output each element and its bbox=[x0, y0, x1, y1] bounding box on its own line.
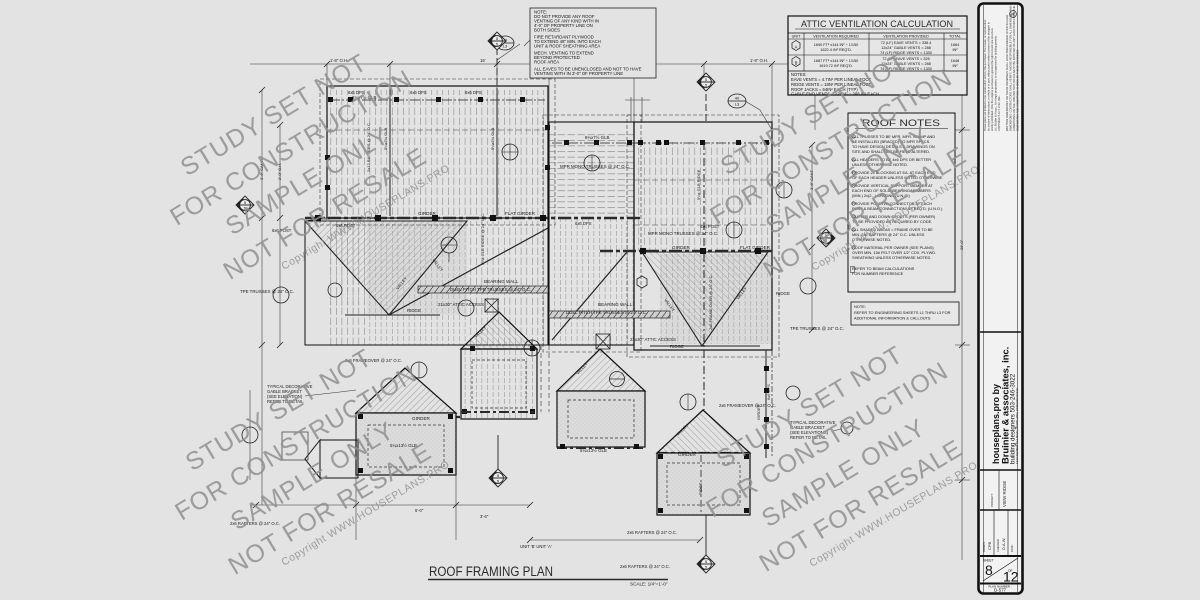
svg-text:UNIT & ROOF SHEATHING AREA: UNIT & ROOF SHEATHING AREA bbox=[534, 44, 600, 49]
svg-text:ROOF AREA: ROOF AREA bbox=[534, 60, 559, 65]
svg-text:2x6 FRAME OVER @ 24" O.C.: 2x6 FRAME OVER @ 24" O.C. bbox=[708, 275, 713, 331]
svg-text:2x6 RAFTERS @ 24" O.C.: 2x6 RAFTERS @ 24" O.C. bbox=[627, 530, 677, 535]
svg-text:BOTH SIDES: BOTH SIDES bbox=[534, 28, 560, 33]
svg-text:RIDGE: RIDGE bbox=[698, 482, 703, 495]
svg-text:12x24" GABLE VENTS = 288: 12x24" GABLE VENTS = 288 bbox=[881, 46, 931, 50]
svg-text:5¼x GLB RIDGE @ 24" O.C.: 5¼x GLB RIDGE @ 24" O.C. bbox=[480, 213, 485, 265]
svg-text:WRITTEN DIMENSIONS ON THESE DR: WRITTEN DIMENSIONS ON THESE DRAWINGS SHA… bbox=[1005, 15, 1009, 131]
svg-text:UNIT 'B' UNIT 'A': UNIT 'B' UNIT 'A' bbox=[520, 544, 552, 549]
svg-text:REFER TO ENGINEERING SHEETS L1: REFER TO ENGINEERING SHEETS L1 THRU L3 F… bbox=[854, 310, 951, 315]
svg-text:1234 SW BERTHA BLVD, PORTLAND,: 1234 SW BERTHA BLVD, PORTLAND, OREGON 97… bbox=[1015, 388, 1019, 464]
svg-text:CHECKED:: CHECKED: bbox=[996, 538, 1000, 552]
svg-text:40: 40 bbox=[735, 96, 740, 101]
svg-text:2x6 FRAMEOVER @ 24" O.C.: 2x6 FRAMEOVER @ 24" O.C. bbox=[719, 403, 776, 408]
svg-text:26'-0": 26'-0" bbox=[959, 239, 964, 250]
svg-text:CONDITIONS ON THE JOB AND THIS: CONDITIONS ON THE JOB AND THIS OFFICE MU… bbox=[1012, 6, 1016, 131]
svg-text:6x6 DPS: 6x6 DPS bbox=[465, 90, 482, 95]
svg-text:TPE TRUSSES @ 24" O.C.: TPE TRUSSES @ 24" O.C. bbox=[240, 289, 294, 294]
svg-text:ADDITIONAL INFORMATION & CALLO: ADDITIONAL INFORMATION & CALLOUTS bbox=[854, 316, 931, 321]
svg-text:21x30" ATTIC ACCESS: 21x30" ATTIC ACCESS bbox=[438, 302, 484, 307]
svg-text:IN²: IN² bbox=[952, 64, 958, 68]
svg-text:6x6 DPS: 6x6 DPS bbox=[766, 384, 771, 400]
svg-text:BEARING WALL: BEARING WALL bbox=[484, 279, 519, 284]
svg-text:1690 FT² x144 IN² ÷ 1/150: 1690 FT² x144 IN² ÷ 1/150 bbox=[814, 43, 859, 47]
svg-text:FLAT GIRDER: FLAT GIRDER bbox=[740, 245, 771, 250]
svg-text:1664: 1664 bbox=[951, 43, 959, 47]
svg-text:72 (LF) EAVE VENTS = 338.4: 72 (LF) EAVE VENTS = 338.4 bbox=[881, 41, 932, 45]
svg-text:1'-8" O.H.: 1'-8" O.H. bbox=[750, 58, 768, 63]
svg-text:1687 FT² x144 IN² ÷ 1/150: 1687 FT² x144 IN² ÷ 1/150 bbox=[814, 59, 859, 63]
svg-text:SCALE: 1/4"=1'-0": SCALE: 1/4"=1'-0" bbox=[630, 582, 668, 587]
svg-text:FLAT GIRDER: FLAT GIRDER bbox=[505, 211, 536, 216]
svg-text:MPR MONO TRUSSES @ 24" O.C.: MPR MONO TRUSSES @ 24" O.C. bbox=[648, 231, 718, 236]
svg-text:GIRDER: GIRDER bbox=[672, 245, 691, 250]
svg-text:These plans are limited to one: These plans are limited to one construct… bbox=[983, 19, 987, 131]
svg-text:BEARING WALL: BEARING WALL bbox=[598, 302, 633, 307]
svg-text:TOTAL: TOTAL bbox=[949, 35, 961, 39]
svg-text:DIMENSIONS. CONTRACTORS SHALL: DIMENSIONS. CONTRACTORS SHALL VERIFY, AN… bbox=[1009, 6, 1013, 131]
svg-text:PROJECT:: PROJECT: bbox=[990, 493, 994, 507]
svg-text:VIEW RIDGE: VIEW RIDGE bbox=[1002, 481, 1007, 507]
svg-text:2x6 RAFTERS @ 24" O.C.: 2x6 RAFTERS @ 24" O.C. bbox=[620, 564, 670, 569]
svg-text:MPR MONO TRUSSES @ 24" O.C.: MPR MONO TRUSSES @ 24" O.C. bbox=[560, 164, 630, 169]
svg-text:GIRDER: GIRDER bbox=[678, 452, 697, 457]
svg-text:VENTILATION PROVIDED: VENTILATION PROVIDED bbox=[883, 35, 929, 39]
svg-text:GIRDER: GIRDER bbox=[418, 211, 437, 216]
svg-text:16': 16' bbox=[480, 58, 486, 63]
svg-text:TPE TRUSSES @ 24" O.C.: TPE TRUSSES @ 24" O.C. bbox=[790, 326, 844, 331]
svg-text:by anyone of these plans, in w: by anyone of these plans, in whole or in… bbox=[987, 22, 991, 131]
svg-text:DRAWN:: DRAWN: bbox=[982, 541, 986, 552]
svg-text:DUEL PITCH TPE TRUSSES @ 24" O: DUEL PITCH TPE TRUSSES @ 24" O.C. bbox=[566, 310, 647, 315]
svg-text:UNIT: UNIT bbox=[792, 35, 802, 39]
svg-text:5'-0": 5'-0" bbox=[415, 508, 424, 513]
svg-text:RIDGE: RIDGE bbox=[407, 308, 421, 313]
svg-text:1619.72 IN² REQ'D.: 1619.72 IN² REQ'D. bbox=[819, 64, 853, 68]
svg-text:8¼x7½ GLB: 8¼x7½ GLB bbox=[585, 135, 609, 140]
svg-text:IN²: IN² bbox=[952, 48, 958, 52]
svg-text:RIDGE: RIDGE bbox=[670, 344, 684, 349]
svg-text:5¼x7¼ GLB: 5¼x7¼ GLB bbox=[490, 127, 495, 150]
svg-text:D-577: D-577 bbox=[994, 588, 1007, 593]
svg-text:Lic. Builder & Assoc., is in l: Lic. Builder & Assoc., is in legal prepa… bbox=[994, 35, 998, 131]
svg-text:B: B bbox=[795, 61, 798, 66]
svg-text:3'-6": 3'-6" bbox=[480, 514, 489, 519]
svg-text:NOTE:: NOTE: bbox=[854, 304, 866, 309]
svg-text:6x6 DPS: 6x6 DPS bbox=[575, 221, 592, 226]
svg-text:GIRDER: GIRDER bbox=[756, 404, 761, 420]
svg-text:GIRDER: GIRDER bbox=[412, 416, 431, 421]
svg-text:21x30" ATTIC ACCESS: 21x30" ATTIC ACCESS bbox=[630, 337, 676, 342]
svg-text:5¼x13½ GLB: 5¼x13½ GLB bbox=[580, 448, 607, 453]
svg-text:1622.4 IN² REQ'D.: 1622.4 IN² REQ'D. bbox=[820, 48, 852, 52]
svg-text:VENTING WITH IN 3'-0" OF PROPE: VENTING WITH IN 3'-0" OF PROPERTY LINE bbox=[534, 71, 623, 76]
svg-text:L3: L3 bbox=[503, 44, 508, 49]
svg-text:RIDGE: RIDGE bbox=[776, 291, 790, 296]
svg-text:ATTIC VENTILATION CALCULATION: ATTIC VENTILATION CALCULATION bbox=[801, 19, 953, 29]
svg-text:L3: L3 bbox=[735, 102, 740, 107]
svg-text:D.A.W.: D.A.W. bbox=[1001, 538, 1006, 550]
svg-text:COPYRIGHT ACT 1732, INC.: COPYRIGHT ACT 1732, INC. bbox=[997, 95, 1001, 131]
svg-text:5¼x GLB RIDGE: 5¼x GLB RIDGE bbox=[696, 169, 701, 200]
svg-text:DIMENSIONS AND CONDITIONS SHOW: DIMENSIONS AND CONDITIONS SHOWN BY THESE… bbox=[1016, 49, 1020, 131]
svg-text:A: A bbox=[795, 45, 798, 50]
svg-text:FOR NUMBER REFERENCE: FOR NUMBER REFERENCE bbox=[852, 271, 904, 276]
svg-text:strictly prohibited. Only the: strictly prohibited. Only the original p… bbox=[990, 27, 994, 131]
svg-text:VENTILATION REQUIRED: VENTILATION REQUIRED bbox=[813, 35, 859, 39]
svg-text:ROOF FRAMING PLAN: ROOF FRAMING PLAN bbox=[429, 564, 553, 579]
svg-text:SHEATHING UNLESS OTHERWISE NOT: SHEATHING UNLESS OTHERWISE NOTED. bbox=[852, 255, 931, 260]
svg-text:DATE:: DATE: bbox=[1010, 544, 1014, 552]
svg-text:DUEL PITCH TPE TRUSSES @ 24" O: DUEL PITCH TPE TRUSSES @ 24" O.C. bbox=[450, 287, 531, 292]
svg-text:12: 12 bbox=[1003, 569, 1019, 585]
svg-text:1648: 1648 bbox=[951, 59, 959, 63]
svg-text:CPB: CPB bbox=[987, 541, 992, 550]
